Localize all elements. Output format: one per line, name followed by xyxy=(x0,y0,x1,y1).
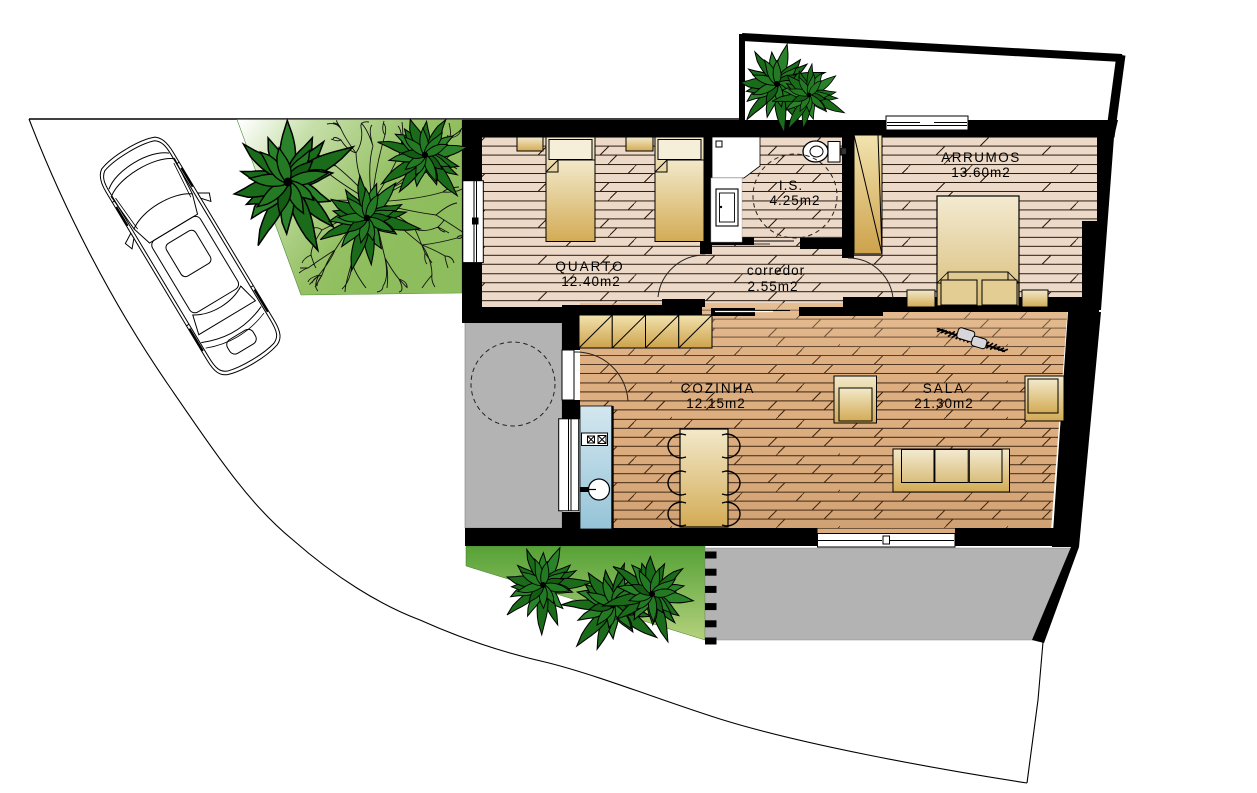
svg-text:ARRUMOS: ARRUMOS xyxy=(941,150,1021,165)
svg-text:SALA: SALA xyxy=(923,381,966,396)
svg-text:corredor: corredor xyxy=(747,263,805,278)
svg-text:12.15m2: 12.15m2 xyxy=(686,396,746,411)
svg-text:I.S.: I.S. xyxy=(779,178,803,193)
svg-text:12.40m2: 12.40m2 xyxy=(561,274,621,289)
svg-text:QUARTO: QUARTO xyxy=(555,259,624,274)
svg-text:2.55m2: 2.55m2 xyxy=(747,279,798,294)
svg-text:13.60m2: 13.60m2 xyxy=(951,165,1011,180)
svg-text:COZINHA: COZINHA xyxy=(681,381,756,396)
svg-text:4.25m2: 4.25m2 xyxy=(769,193,820,208)
svg-text:21.30m2: 21.30m2 xyxy=(914,396,974,411)
